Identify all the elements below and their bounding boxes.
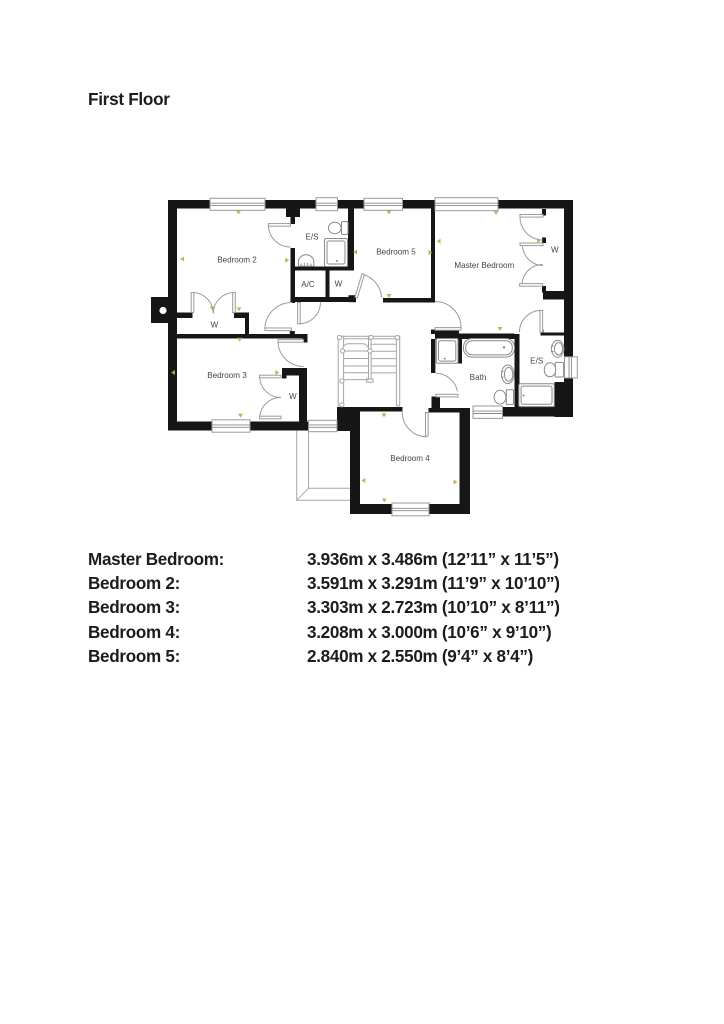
svg-text:A/C: A/C — [301, 280, 315, 289]
svg-text:W: W — [551, 246, 559, 255]
svg-text:W: W — [335, 280, 343, 289]
svg-text:E/S: E/S — [530, 357, 544, 366]
svg-text:Master Bedroom: Master Bedroom — [454, 261, 514, 270]
svg-text:Bedroom 3: Bedroom 3 — [207, 371, 247, 380]
svg-text:Bedroom 4: Bedroom 4 — [390, 454, 430, 463]
svg-text:Bath: Bath — [470, 373, 487, 382]
svg-text:Bedroom 2: Bedroom 2 — [217, 256, 257, 265]
svg-text:W: W — [211, 321, 219, 330]
svg-text:W: W — [289, 392, 297, 401]
svg-text:Bedroom 5: Bedroom 5 — [376, 248, 416, 257]
svg-text:E/S: E/S — [305, 233, 319, 242]
